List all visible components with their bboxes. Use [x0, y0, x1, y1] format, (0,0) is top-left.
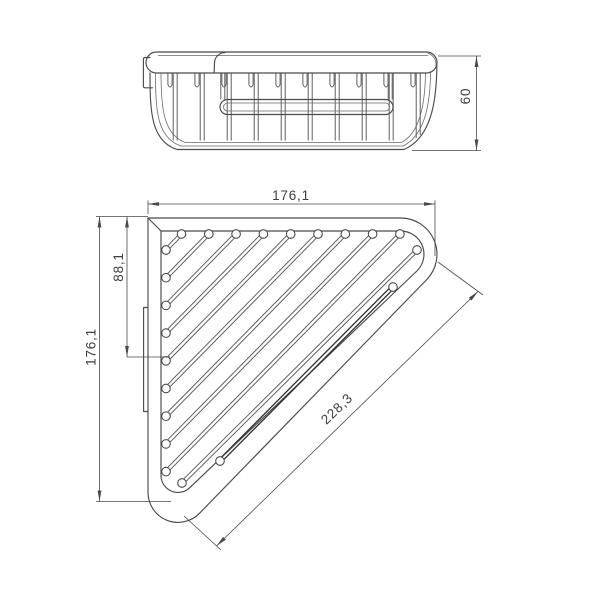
wire-end-loop — [162, 273, 171, 282]
wire-end-loop — [341, 230, 350, 239]
plan-view: 176,1 176,1 88,1 228,3 — [84, 188, 484, 550]
plan-wires-b — [165, 233, 399, 471]
vertical-wires-side — [173, 74, 420, 141]
technical-drawing-page: 60 — [0, 0, 600, 600]
dim-arrow-left-top — [98, 217, 102, 228]
dim-arrow-top-right — [424, 202, 435, 206]
technical-drawing: 60 — [0, 0, 600, 600]
wire-end-loop — [162, 440, 171, 449]
wire-end-loop — [162, 384, 171, 393]
wire-loops-side — [168, 74, 415, 88]
dim-arrow-inner-top — [125, 217, 129, 228]
dimension-label-diagonal: 228,3 — [318, 390, 356, 427]
dim-arrow-top-left — [148, 202, 159, 206]
wire-end-loop — [177, 230, 186, 239]
wire-end-loop — [314, 230, 323, 239]
wire-end-loop — [162, 301, 171, 310]
wire-end-loop — [389, 283, 398, 292]
wire-end-loop — [178, 479, 187, 488]
wire-end-loop — [162, 246, 171, 255]
dim-arrow-60-top — [475, 56, 479, 67]
wire-end-loop — [162, 467, 171, 476]
side-elevation-view: 60 — [143, 52, 481, 151]
dim-arrow-inner-bottom — [125, 346, 129, 357]
wire-end-loop — [162, 357, 171, 366]
dim-arrow-diagonal-top — [469, 292, 478, 301]
wall-bracket-side — [143, 58, 152, 88]
wire-end-loop — [396, 230, 405, 239]
plan-inner-frame-bar — [219, 286, 394, 462]
plan-corner-miter — [148, 218, 161, 231]
wire-end-loop — [205, 230, 214, 239]
wire-end-loop — [232, 230, 241, 239]
plan-wall-bracket — [144, 308, 148, 412]
dim-ext-lines-top — [148, 201, 435, 257]
wire-end-loop — [162, 329, 171, 338]
wire-end-loop — [286, 230, 295, 239]
dimension-side-height: 60 — [412, 56, 481, 151]
wire-end-loop — [259, 230, 268, 239]
wire-end-loop — [216, 457, 225, 466]
plan-wires-a — [167, 235, 401, 473]
dimension-label-inner-height: 88,1 — [111, 252, 126, 281]
dimension-plan-top-width: 176,1 — [148, 188, 435, 256]
right-rim-cap-arc — [428, 53, 437, 66]
dim-arrow-60-bottom — [475, 140, 479, 151]
dimension-label-top-width: 176,1 — [272, 188, 310, 203]
inner-frame-side — [220, 74, 393, 115]
wire-end-loop — [162, 412, 171, 421]
dim-arrow-diagonal-bottom — [217, 537, 226, 546]
shell-outer — [150, 63, 437, 150]
basket-shell-side — [150, 63, 437, 150]
wire-end-loop — [368, 230, 377, 239]
dimension-label-side-height: 60 — [458, 88, 473, 105]
dimension-label-left-height: 176,1 — [84, 328, 99, 366]
dim-ext-lines-left — [96, 217, 171, 502]
inner-frame-outer-band — [220, 100, 393, 115]
plan-wire-loops-left — [162, 246, 187, 488]
plan-frame-bar-loops — [216, 283, 398, 466]
wire-end-loop — [413, 246, 422, 255]
dim-line-diagonal — [217, 292, 479, 547]
dim-arrow-left-bottom — [98, 491, 102, 502]
plan-inner-outline — [161, 231, 424, 492]
inner-frame-inner-band — [224, 103, 390, 111]
